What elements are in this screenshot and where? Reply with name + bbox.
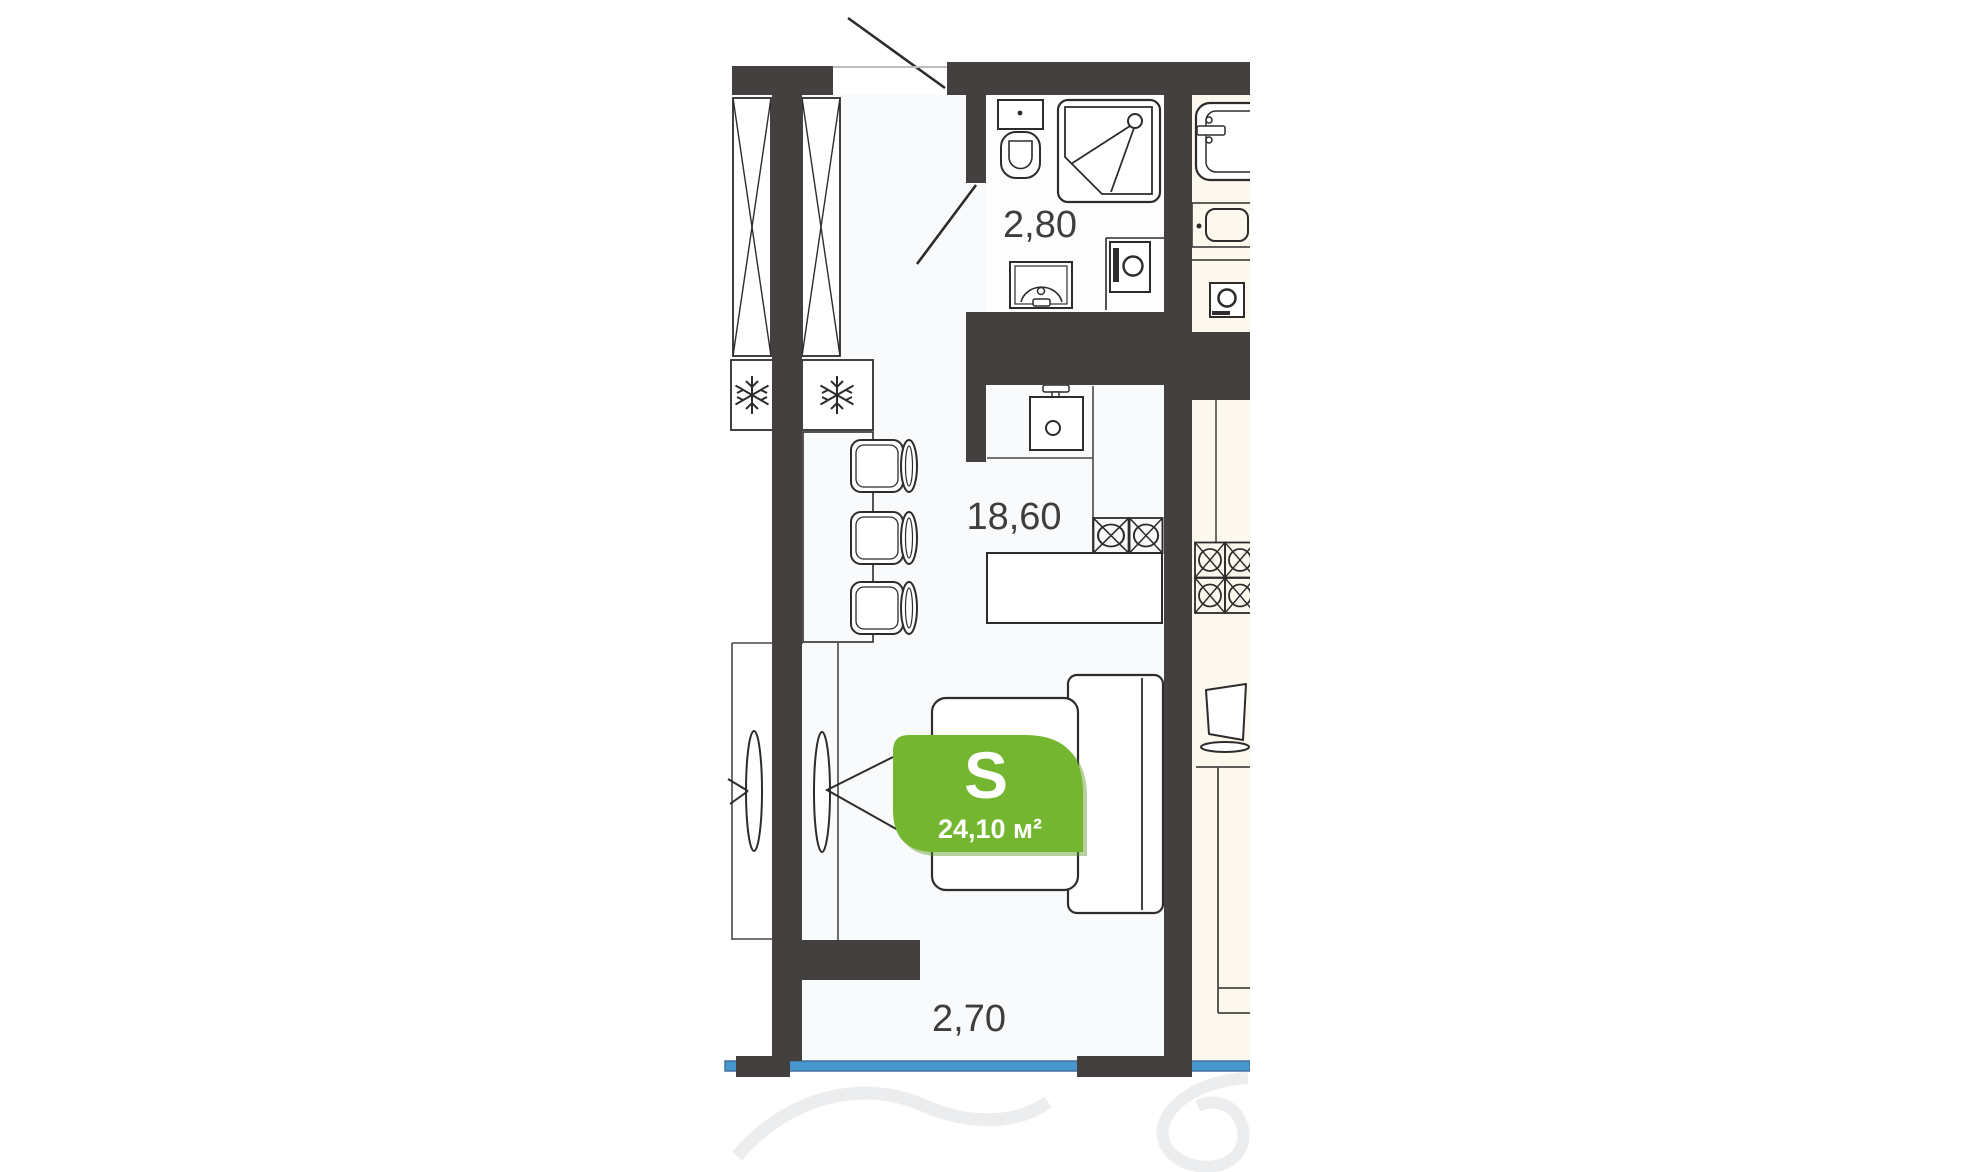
floor-plan-canvas: 2,80 18,60 2,70 S 24,10 м² — [0, 0, 1980, 1172]
chair-1 — [851, 440, 917, 492]
wall-top-right — [947, 62, 1250, 95]
sliding-door-leaf-right — [814, 732, 830, 852]
wall-central-vertical — [1164, 62, 1192, 1077]
wall-bathroom-bottom — [966, 312, 1164, 385]
shower-cabin — [1058, 100, 1160, 202]
dining-table — [987, 553, 1162, 623]
wardrobe-x-box-left — [733, 98, 771, 356]
wall-stub-horizontal — [772, 940, 920, 980]
area-badge-value: 24,10 м² — [938, 814, 1042, 844]
wall-left-vertical — [772, 95, 802, 1061]
chair-3 — [851, 582, 917, 634]
chair-2 — [851, 512, 917, 564]
area-badge-letter: S — [964, 738, 1008, 812]
wall-top-left — [732, 66, 833, 95]
fridge-left — [731, 360, 775, 430]
sliding-door-leaf-left — [746, 731, 762, 851]
wall-pier-left — [736, 1056, 790, 1077]
area-badge: S 24,10 м² — [893, 735, 1087, 856]
neighbor-washing-machine — [1210, 283, 1244, 317]
toilet — [998, 100, 1043, 178]
wall-bathroom-left — [966, 66, 986, 183]
neighbor-stove — [1195, 543, 1255, 614]
image-cutoff-mask — [1250, 0, 1980, 1172]
dimension-bathroom: 2,80 — [1003, 204, 1077, 246]
wall-neighbor-band — [1192, 332, 1250, 400]
fridge-right — [802, 360, 873, 430]
dimension-living: 18,60 — [966, 496, 1061, 538]
dimension-width-bottom: 2,70 — [932, 998, 1006, 1040]
wardrobe-x-box-right — [802, 98, 840, 356]
wall-pier-right — [1077, 1056, 1192, 1077]
washbasin — [1010, 262, 1072, 308]
